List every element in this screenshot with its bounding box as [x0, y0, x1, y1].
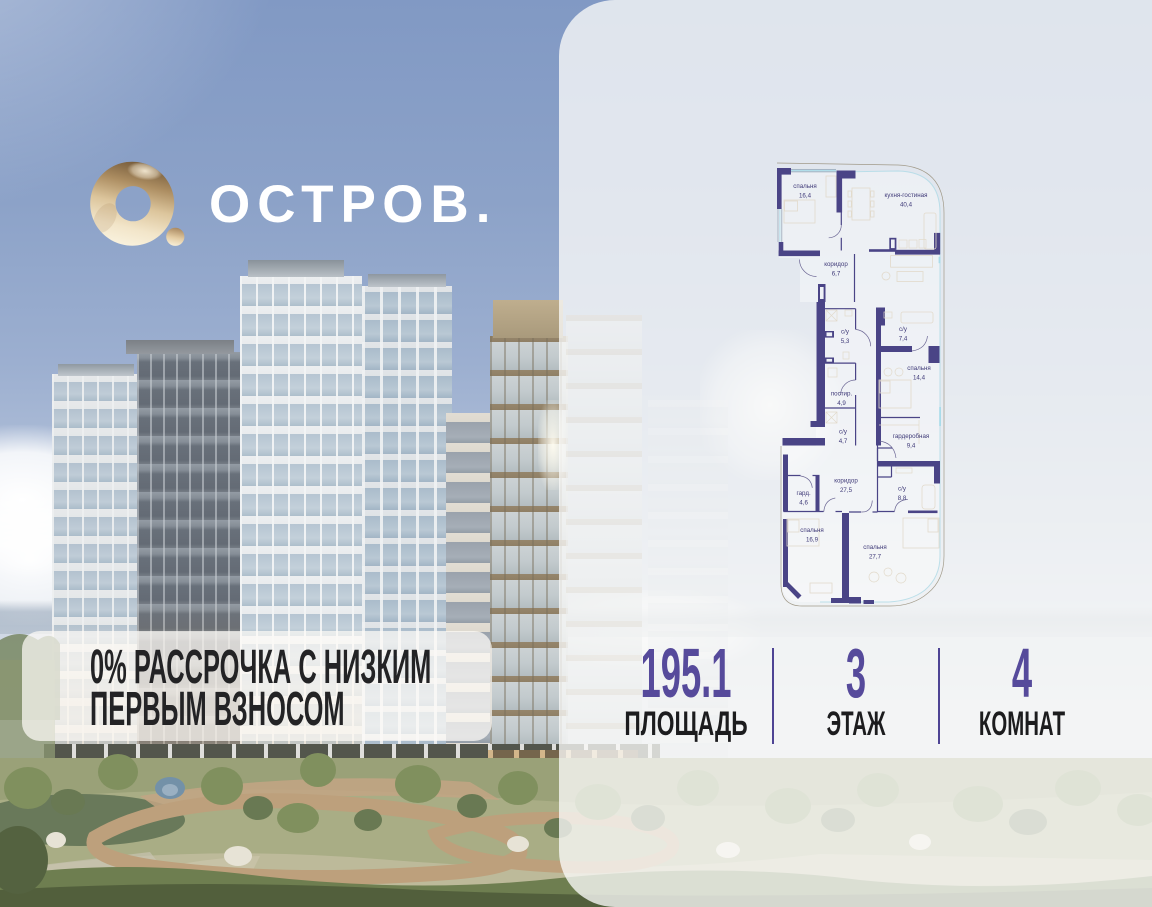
- svg-text:4,7: 4,7: [839, 438, 848, 445]
- svg-text:с/у: с/у: [841, 329, 850, 336]
- svg-text:5,3: 5,3: [841, 338, 850, 345]
- svg-text:14,4: 14,4: [913, 375, 926, 382]
- svg-text:с/у: с/у: [899, 326, 908, 333]
- svg-text:гардеробная: гардеробная: [893, 433, 930, 440]
- svg-text:4,9: 4,9: [837, 400, 846, 407]
- svg-text:коридор: коридор: [824, 261, 848, 268]
- svg-text:с/у: с/у: [839, 429, 848, 436]
- svg-text:6,7: 6,7: [832, 271, 841, 278]
- svg-text:7,4: 7,4: [899, 336, 908, 343]
- svg-text:27,5: 27,5: [840, 487, 853, 494]
- svg-text:гард.: гард.: [796, 490, 810, 497]
- svg-text:27,7: 27,7: [869, 554, 882, 561]
- svg-text:постир.: постир.: [831, 391, 853, 398]
- svg-text:16,4: 16,4: [799, 193, 812, 200]
- svg-text:40,4: 40,4: [900, 202, 913, 209]
- svg-text:коридор: коридор: [834, 478, 858, 485]
- svg-text:кухня-гостиная: кухня-гостиная: [885, 192, 928, 199]
- svg-text:спальня: спальня: [907, 365, 931, 372]
- svg-text:с/у: с/у: [898, 486, 907, 493]
- svg-text:8,8: 8,8: [898, 495, 907, 502]
- svg-text:спальня: спальня: [863, 544, 887, 551]
- svg-text:спальня: спальня: [800, 527, 824, 534]
- svg-text:9,4: 9,4: [907, 443, 916, 450]
- svg-text:16,9: 16,9: [806, 537, 819, 544]
- svg-text:спальня: спальня: [793, 183, 817, 190]
- svg-text:4,6: 4,6: [799, 500, 808, 507]
